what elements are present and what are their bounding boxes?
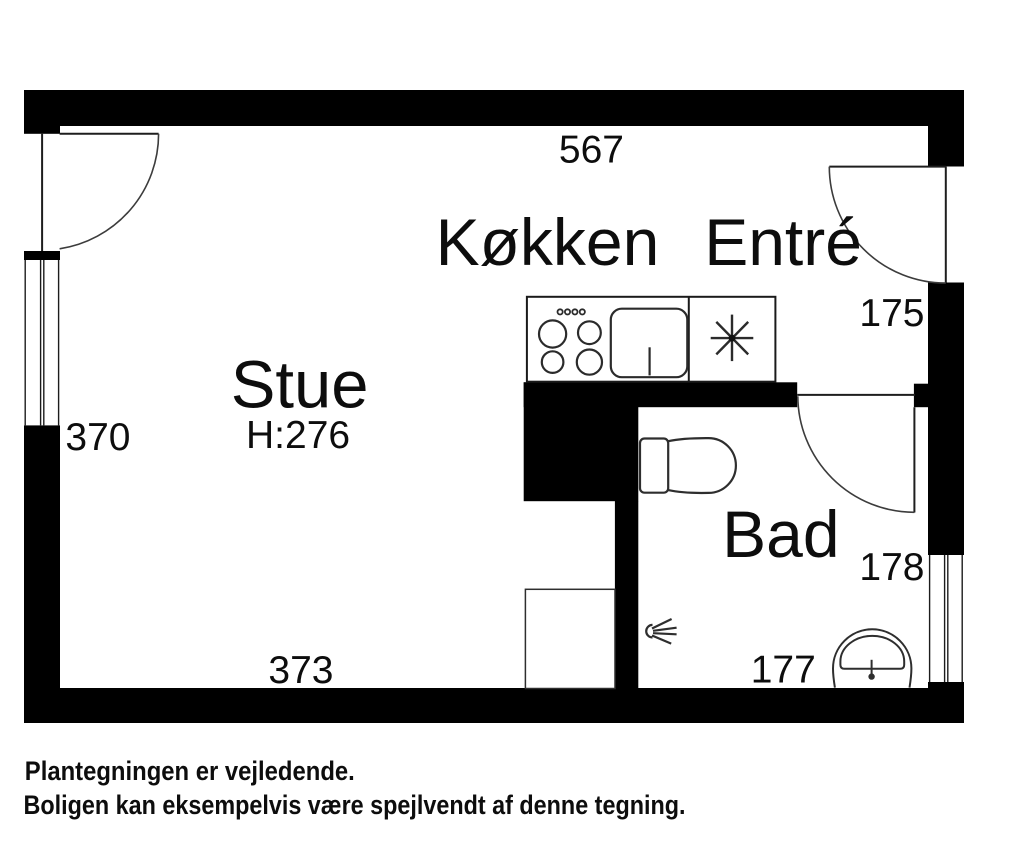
svg-text:178: 178 [859,546,924,589]
svg-text:567: 567 [559,128,624,171]
svg-text:Stue: Stue [231,348,369,423]
svg-text:370: 370 [65,416,130,459]
svg-text:Boligen kan eksempelvis være s: Boligen kan eksempelvis være spejlvendt … [24,790,686,820]
svg-text:Plantegningen er vejledende.: Plantegningen er vejledende. [25,756,355,786]
svg-text:Bad: Bad [722,497,839,571]
svg-text:Køkken: Køkken [436,205,660,279]
svg-text:177: 177 [751,648,816,691]
svg-text:373: 373 [268,649,333,692]
svg-text:175: 175 [859,292,924,335]
svg-text:Entré: Entré [704,205,862,279]
svg-text:H:276: H:276 [246,414,350,457]
